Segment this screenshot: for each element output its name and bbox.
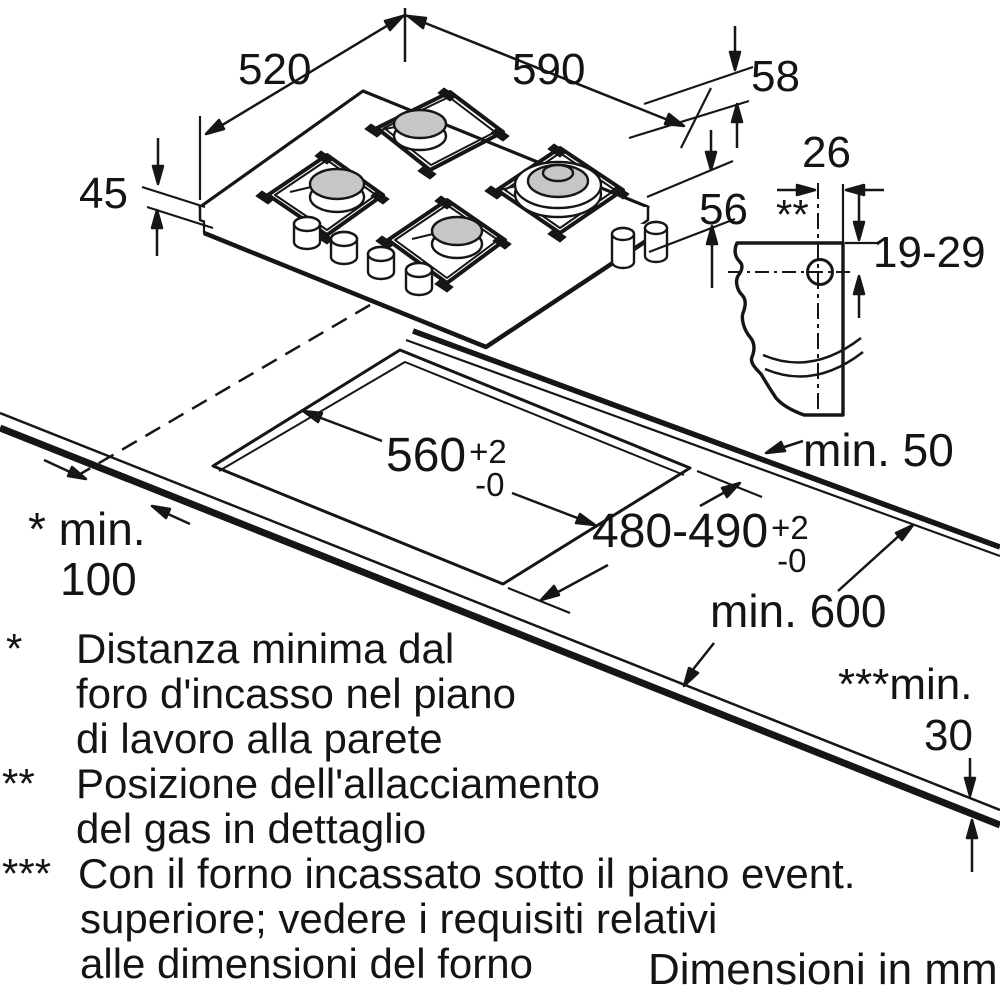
footnote-3-line-1: Con il forno incassato sotto il piano ev…	[78, 853, 855, 895]
dim-cutout-width: 560+2-0	[386, 432, 507, 509]
footnote-1-line-3: di lavoro alla parete	[76, 718, 443, 760]
installation-diagram-page: 520 590 58 45 56 26 ** 19-29 560+2-0 480…	[0, 0, 1000, 1000]
dim-min-oven-gap-label: ***min.	[838, 663, 973, 707]
footnote-3-marker: ***	[2, 853, 51, 895]
dim-min-oven-gap-value: 30	[924, 714, 973, 758]
dim-install-depth: 56	[699, 188, 748, 232]
dim-gas-offset-range: 19-29	[873, 231, 986, 275]
dim-hob-width: 590	[512, 48, 585, 92]
footnote-3-line-3: alle dimensioni del forno	[80, 943, 533, 985]
dim-min-worktop-depth: min. 600	[710, 588, 886, 634]
dim-gas-offset-width: 26	[802, 131, 851, 175]
footnote-2-line-2: del gas in dettaglio	[76, 808, 426, 850]
hob	[200, 88, 667, 347]
dim-hob-depth: 520	[238, 48, 311, 92]
gas-detail-marker: **	[776, 194, 809, 236]
cutout-depth-tol-plus: +2	[771, 511, 809, 544]
footnote-3-line-2: superiore; vedere i requisiti relativi	[80, 898, 717, 940]
projection-line	[70, 305, 370, 480]
dim-cutout-depth: 480-490+2-0	[592, 508, 809, 585]
units-note: Dimensioni in mm	[648, 948, 998, 992]
cutout-depth-tol-minus: -0	[777, 544, 806, 577]
cutout-depth-value: 480-490	[592, 505, 768, 558]
footnote-2-marker: **	[2, 763, 35, 805]
dim-body-height: 45	[79, 172, 128, 216]
dim-edge-height: 58	[751, 55, 800, 99]
cutout-width-tol-plus: +2	[469, 435, 507, 468]
footnote-2-line-1: Posizione dell'allacciamento	[76, 763, 600, 805]
cutout-width-tol-minus: -0	[475, 468, 504, 501]
footnote-1-line-2: foro d'incasso nel piano	[76, 673, 516, 715]
cutout-width-value: 560	[386, 429, 466, 482]
dim-min-back-clearance: min. 50	[803, 427, 954, 473]
footnote-1-marker: *	[6, 628, 22, 670]
dim-min-wall-label: * min.	[28, 506, 146, 552]
footnote-1-line-1: Distanza minima dal	[76, 628, 454, 670]
dim-min-wall-value: 100	[60, 556, 137, 602]
